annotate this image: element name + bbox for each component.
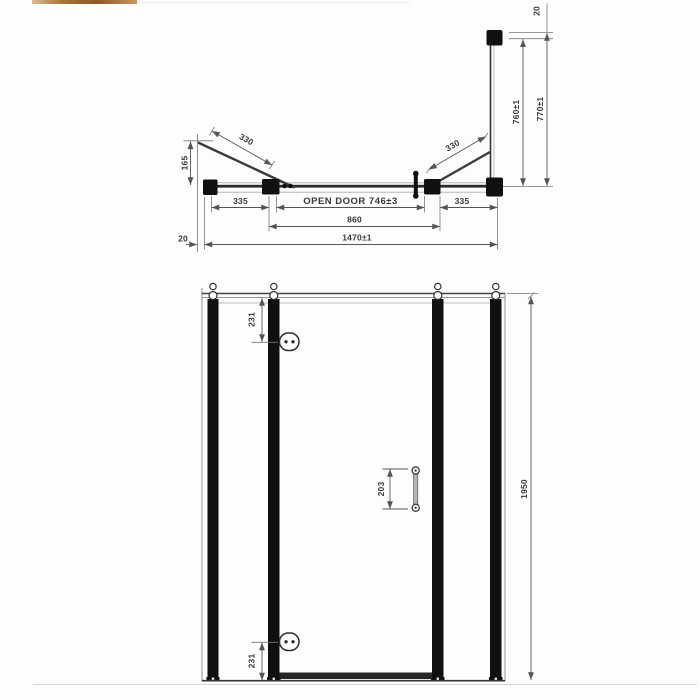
dim-frame-width: 860 [269, 215, 440, 227]
hinge-right-plan [424, 179, 441, 195]
dim-label-panel-left: 335 [233, 196, 248, 206]
hinge-top-elevation [280, 333, 300, 351]
dim-label-brace-right: 330 [444, 137, 462, 153]
elevation-view: 231 203 231 1950 [33, 283, 697, 684]
top-rail [202, 294, 505, 304]
dim-label-wall-profile-left: 20 [178, 234, 188, 244]
dim-overall-height: 1950 [507, 293, 539, 681]
post-wall-left [208, 299, 219, 677]
dim-label-open-door: OPEN DOOR 746±3 [303, 196, 398, 207]
glazing-posts [207, 299, 503, 682]
dim-return-overall: 770±1 [535, 33, 547, 186]
dim-label-overall-height: 1950 [519, 479, 529, 499]
corner-bracket-plan [486, 178, 503, 197]
dim-label-hinge-top: 231 [247, 312, 257, 327]
post-finials [209, 283, 500, 299]
dim-label-bracket-height: 165 [180, 156, 190, 171]
dim-brace-right: 330 [427, 133, 489, 173]
dim-panel-left: 335 [212, 196, 270, 208]
dim-label-brace-left: 330 [238, 131, 256, 147]
dim-label-return-glass: 760±1 [511, 100, 521, 125]
dim-label-handle-centres: 203 [376, 482, 386, 497]
dim-overall-width: 1470±1 [205, 233, 498, 245]
dim-label-wall-profile-top: 20 [532, 6, 542, 16]
dim-label-hinge-bottom: 231 [247, 654, 257, 669]
door-handle-elevation [412, 467, 419, 512]
technical-drawing-canvas: 165 330 330 [0, 0, 700, 700]
dim-wall-profile-left: 20 [178, 234, 197, 245]
dim-panel-right: 335 [440, 196, 498, 208]
dim-open-door: OPEN DOOR 746±3 [277, 196, 425, 208]
hinge-bottom-elevation [280, 633, 300, 651]
dim-handle-centres: 203 [376, 469, 408, 509]
dim-return-glass: 760±1 [511, 39, 523, 186]
dim-label-panel-right: 335 [455, 196, 470, 206]
wall-bracket-plan [203, 180, 218, 196]
post-corner-right [490, 299, 502, 677]
shower-enclosure-drawing: 165 330 330 [0, 0, 700, 700]
post-hinge [268, 299, 280, 677]
front-glass-panel-line [205, 183, 500, 192]
door-handle-plan [413, 171, 419, 199]
plan-right-extension-lines [503, 4, 553, 187]
dim-label-return-overall: 770±1 [535, 97, 545, 122]
plan-view: 165 330 330 [178, 4, 553, 253]
return-panel-line [491, 45, 495, 182]
support-brace-right [433, 152, 490, 185]
post-closing [432, 299, 444, 677]
dim-label-frame-width: 860 [347, 215, 362, 225]
dim-label-overall-width: 1470±1 [342, 233, 372, 243]
return-top-bracket-plan [487, 30, 503, 46]
door-bottom-rail [280, 673, 433, 680]
